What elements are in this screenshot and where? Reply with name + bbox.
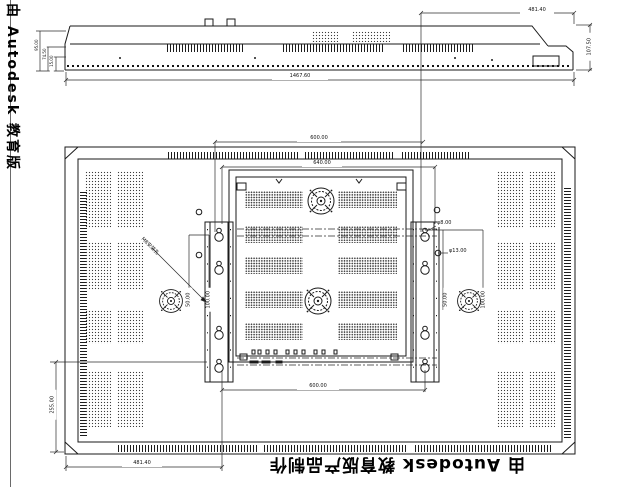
top-view-profile [65, 19, 573, 70]
dim-rail-right-b: 100.00 [481, 288, 487, 312]
dim-left-stack-3: 15.00 [50, 50, 54, 72]
dim-rail-left-a: 50.00 [186, 288, 192, 312]
dim-vesa-width-bottom: 600.00 [297, 384, 339, 390]
dim-vesa-width-top: 600.00 [297, 136, 341, 142]
fan-grille-icon [308, 188, 334, 214]
dim-left-stack-2: 74.50 [43, 43, 47, 65]
dim-rail-left-b: 100.00 [206, 288, 212, 312]
dim-profile-height: 107.50 [587, 33, 593, 61]
fan-grille-icon [160, 290, 183, 313]
watermark-left: 由 Autodesk 教育版 [7, 3, 23, 193]
watermark-bottom: 由 Autodesk 教育版产品制作 [237, 455, 557, 479]
fan-grille-icon [305, 288, 331, 314]
dim-bottom-left-offset: 481.40 [122, 461, 162, 467]
rear-view-outline [65, 147, 575, 454]
centerlines [237, 229, 437, 365]
mount-plate [229, 170, 413, 363]
label-hole-large: φ13.00 [449, 249, 467, 255]
cad-drawing-sheet: 由 Autodesk 教育版 由 Autodesk 教育版产品制作 [0, 0, 631, 487]
dimension-lines [36, 11, 592, 471]
dim-overall-width: 1467.60 [272, 74, 328, 80]
dim-left-stack-1: 95.00 [35, 34, 39, 56]
dim-left-height: 255.00 [50, 390, 56, 420]
dim-right-offset: 481.40 [520, 8, 554, 14]
dim-rail-right-a: 50.00 [443, 288, 449, 312]
fan-grille-icon [458, 290, 481, 313]
label-hole-small: φ8.00 [437, 221, 451, 227]
dim-plate-width: 640.00 [302, 161, 342, 167]
